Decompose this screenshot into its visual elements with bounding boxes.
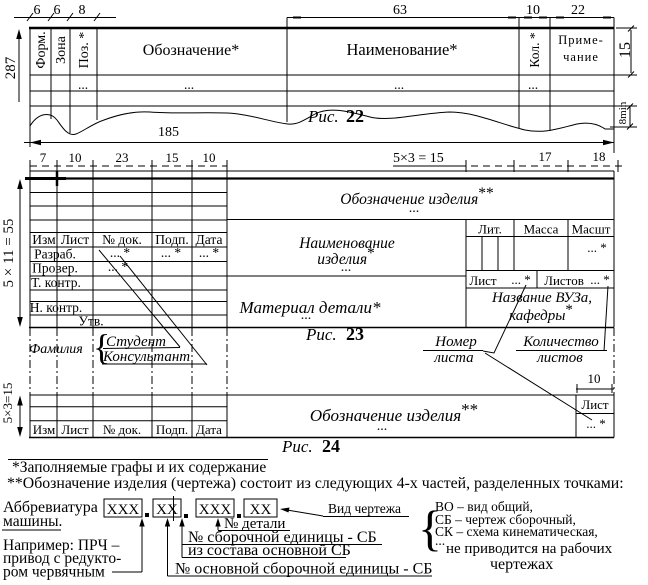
- svg-text:Консультант: Консультант: [102, 349, 190, 365]
- svg-text:...: ...: [435, 533, 445, 548]
- svg-text:15: 15: [166, 150, 179, 165]
- svg-text:23: 23: [346, 324, 364, 344]
- svg-text:Лист: Лист: [581, 397, 609, 412]
- svg-text:6: 6: [54, 3, 61, 18]
- svg-text:чание: чание: [563, 50, 599, 64]
- svg-text:Рис.: Рис.: [305, 325, 337, 344]
- svg-text:...: ...: [528, 77, 538, 92]
- svg-text:...: ...: [409, 201, 420, 216]
- svg-text:... *: ... *: [586, 416, 606, 431]
- svg-text:22: 22: [571, 3, 585, 18]
- svg-text:№ док.: № док.: [103, 422, 141, 437]
- svg-text:Листов: Листов: [544, 273, 584, 288]
- svg-text:...: ...: [377, 419, 388, 434]
- svg-text:машины.: машины.: [3, 513, 62, 530]
- svg-text:Разраб.: Разраб.: [34, 247, 76, 262]
- svg-text:5×3=15: 5×3=15: [0, 383, 15, 424]
- svg-text:Лит.: Лит.: [478, 222, 502, 237]
- svg-text:Обозначение*: Обозначение*: [143, 42, 239, 59]
- svg-text:листов: листов: [536, 350, 583, 366]
- svg-text:18: 18: [593, 149, 606, 164]
- svg-text:6: 6: [34, 3, 41, 18]
- svg-text:10: 10: [203, 150, 216, 165]
- svg-text:Изм: Изм: [32, 232, 56, 247]
- svg-text:7: 7: [40, 150, 47, 165]
- svg-text:Лист: Лист: [61, 232, 89, 247]
- svg-text:185: 185: [158, 125, 179, 140]
- svg-text:Название ВУЗа,: Название ВУЗа,: [491, 290, 592, 306]
- svg-text:Зона: Зона: [54, 35, 69, 64]
- svg-text:...: ...: [341, 260, 352, 275]
- svg-text:**Обозначение изделия (чертежа: **Обозначение изделия (чертежа) состоит …: [7, 475, 624, 492]
- svg-text:... *: ... *: [199, 245, 220, 260]
- svg-text:5 × 11 = 55: 5 × 11 = 55: [1, 219, 17, 288]
- svg-text:63: 63: [393, 3, 407, 18]
- svg-text:10: 10: [526, 3, 540, 18]
- svg-text:Изм: Изм: [33, 422, 56, 437]
- svg-text:22: 22: [346, 106, 364, 126]
- svg-text:№ основной сборочной единицы -: № основной сборочной единицы - СБ: [175, 561, 432, 578]
- svg-text:Фамилия: Фамилия: [29, 342, 83, 357]
- svg-text:не приводится на рабочих: не приводится на рабочих: [446, 541, 613, 557]
- svg-text:Лист: Лист: [61, 422, 89, 437]
- svg-text:Подп.: Подп.: [156, 422, 188, 437]
- svg-text:Вид чертежа: Вид чертежа: [328, 501, 401, 516]
- svg-text:Количество: Количество: [522, 334, 599, 350]
- svg-text:ХХ: ХХ: [156, 502, 178, 518]
- svg-text:Провер.: Провер.: [32, 261, 78, 276]
- svg-text:*Заполняемые графы и их содерж: *Заполняемые графы и их содержание: [12, 459, 266, 476]
- svg-text:...: ...: [78, 77, 88, 92]
- svg-text:... *: ... *: [108, 259, 129, 274]
- svg-text:СК – схема кинематическая,: СК – схема кинематическая,: [435, 524, 598, 539]
- svg-text:Номер: Номер: [434, 334, 477, 350]
- svg-text:...: ...: [184, 77, 194, 92]
- svg-text:5×3 = 15: 5×3 = 15: [393, 151, 444, 166]
- svg-text:Наименование: Наименование: [298, 235, 395, 252]
- svg-text:8min: 8min: [617, 101, 629, 124]
- svg-text:Приме-: Приме-: [558, 33, 604, 47]
- svg-text:Т. контр.: Т. контр.: [31, 275, 81, 290]
- svg-text:Поз. *: Поз. *: [77, 32, 92, 69]
- svg-text:24: 24: [322, 436, 340, 456]
- svg-text:... *: ... *: [161, 245, 182, 260]
- svg-text:Рис.: Рис.: [281, 437, 313, 456]
- svg-text:Дата: Дата: [196, 422, 222, 437]
- svg-text:чертежах: чертежах: [490, 556, 553, 573]
- svg-text:Кол. *: Кол. *: [527, 32, 542, 67]
- svg-text:листа: листа: [433, 350, 473, 366]
- svg-text:10: 10: [69, 150, 82, 165]
- svg-text:10: 10: [588, 371, 601, 386]
- svg-text:...: ...: [301, 308, 312, 323]
- svg-text:Н. контр.: Н. контр.: [30, 300, 83, 315]
- svg-text:Наименование*: Наименование*: [346, 40, 457, 59]
- svg-text:... *: ... *: [110, 245, 131, 260]
- svg-text:23: 23: [116, 150, 129, 165]
- svg-text:... *: ... *: [587, 240, 607, 255]
- svg-text:8: 8: [79, 3, 86, 18]
- svg-text:ром червячным: ром червячным: [3, 564, 105, 581]
- svg-text:Рис.: Рис.: [307, 107, 339, 126]
- svg-text:ХХХ: ХХХ: [107, 502, 140, 518]
- svg-text:...: ...: [394, 77, 404, 92]
- svg-text:Лист: Лист: [469, 273, 497, 288]
- svg-text:15: 15: [617, 42, 634, 58]
- svg-text:Форм.: Форм.: [34, 31, 49, 68]
- svg-text:Масса: Масса: [524, 222, 559, 237]
- svg-text:287: 287: [3, 56, 19, 79]
- svg-text:Обозначение изделия**: Обозначение изделия**: [310, 400, 478, 425]
- svg-text:... *: ... *: [511, 272, 531, 287]
- svg-text:... *: ... *: [590, 272, 610, 287]
- svg-text:17: 17: [539, 149, 553, 164]
- svg-text:Масшт: Масшт: [572, 222, 611, 237]
